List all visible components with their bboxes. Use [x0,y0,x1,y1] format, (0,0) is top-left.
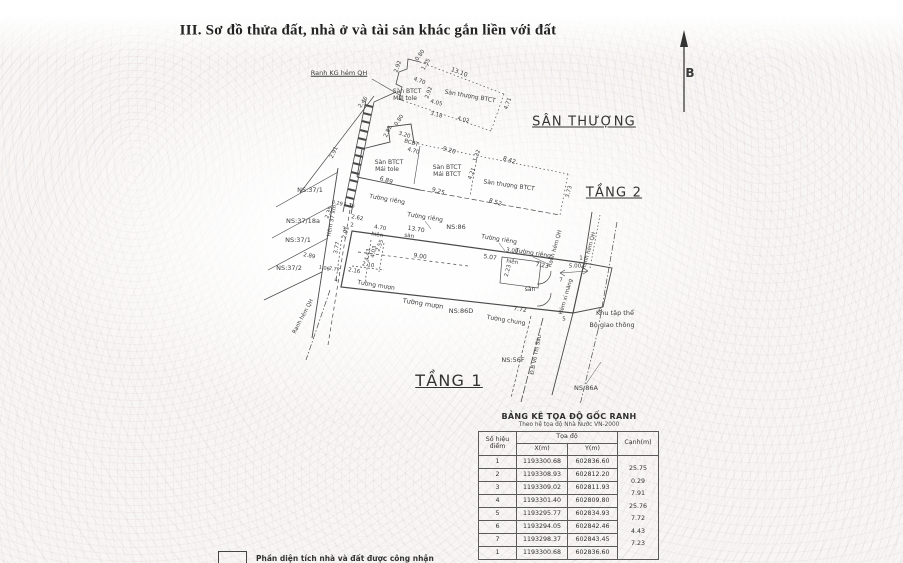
coord-row: 11193300.68602836.6025.750.297.9125.767.… [479,456,659,469]
surface-label: sàn [404,234,414,241]
scanned-land-certificate-page: III. Sơ đồ thửa đất, nhà ở và tài sản kh… [0,0,903,563]
coord-cell: 602834.93 [568,508,618,521]
porch-label: hiên [371,232,384,239]
dimension-label: 2.82 [384,125,394,138]
dimension-label: 2.92 [394,60,403,73]
dimension-label: 3.73 [566,185,574,198]
coord-cell: 602811.93 [568,482,618,495]
heading-tang-2: TẦNG 2 [586,187,642,200]
coord-cell: 1193300.68 [517,547,568,560]
edge-length-value: 7.91 [618,488,658,501]
point-number: 4 [334,278,338,284]
coord-cell: 602842.46 [568,521,618,534]
dimension-label: 4.02 [456,117,469,125]
dimension-label: 2.92 [425,86,434,99]
legend-swatch [218,551,247,563]
heading-san-thuong: SÂN THƯỢNG [532,116,636,129]
dimension-label: 8.52 [488,198,503,208]
point-number: 7 [559,278,563,284]
coord-cell: 1193298.37 [517,534,568,547]
ns-parcel-label: NS:37/2 [276,265,302,272]
wall-label: Tường riêng [481,234,518,246]
col-header-x: X(m) [517,444,568,456]
dimension-label: 3.77 [334,241,342,254]
edge-length-value: 7.23 [618,538,658,551]
dimension-label: 13.10 [450,67,468,79]
ns-parcel-label: NS:37/1 [297,187,323,194]
ns-parcel-label: NS:86 [446,224,465,231]
coord-table-title: BẢNG KÊ TỌA ĐỘ GỐC RANH [478,412,660,421]
coord-cell: 6 [479,521,517,534]
drawing-labels-layer: SÂN THƯỢNGTẦNG 2TẦNG 1BRanh KG hẻm QH0.8… [0,0,903,563]
dimension-label: 7.72 [513,306,527,314]
coord-cell: 1193308.93 [517,469,568,482]
surface-label: sàn [525,287,536,293]
wall-label: Tường mượn [357,280,395,292]
point-number: 5 [562,317,566,323]
street-label: Đ.B Võ Thị Sáu [530,335,543,376]
surface-label: Sàn thượng BTCT [444,90,496,105]
dimension-label: 8.42 [502,156,517,166]
ns-parcel-label: NS:86D [449,308,473,315]
heading-tang-1: TẦNG 1 [415,373,483,389]
dimension-label: 2.16 [347,268,360,276]
wall-label: Tường chung [486,315,526,327]
dimension-label: 1.36 [343,202,355,209]
ns-parcel-label: NS:37/18a [286,218,320,225]
surface-label: Mái tole [375,167,399,173]
coord-cell: 602812.20 [568,469,618,482]
dimension-label: 2.89 [302,253,315,261]
coord-cell: 602836.60 [568,456,618,469]
dimension-label: 2.10 [361,262,374,270]
ns-parcel-label: NS:56F [501,357,524,364]
dimension-label: 4.71 [504,97,513,110]
edge-length-column: 25.750.297.9125.767.724.437.23 [618,456,659,560]
alley-label: Hẻm xi măng [559,279,574,316]
edge-length-value: 4.43 [618,526,658,539]
coord-cell: 4 [479,495,517,508]
coord-table-subtitle: Theo hệ tọa độ Nhà Nước VN-2000 [478,422,660,428]
surface-label: Mái tole [393,96,417,102]
boundary-label: Ranh hẻm QH [548,230,564,268]
col-header-point: Số hiệu điểm [479,432,517,456]
coord-cell: 7 [479,534,517,547]
wall-label: Tường riêng [369,194,406,206]
dimension-label: 4.70 [412,77,425,87]
area-label: Bộ giao thông [589,322,634,329]
dimension-label: 6.89 [379,176,394,186]
area-label: Khu tập thể [596,310,634,317]
dimension-label: 4.21 [468,167,477,180]
dimension-label: 9.20 [442,146,457,156]
dimension-label: 2.77 [328,266,340,273]
coord-cell: 1193301.40 [517,495,568,508]
coord-cell: 2 [479,469,517,482]
surface-label: Sàn thượng BTCT [483,179,535,192]
coord-table-head: Số hiệu điểm Tọa độ Cạnh(m) X(m) Y(m) [479,432,659,456]
edge-length-value: 0.29 [618,476,658,489]
wall-label: Tường mượn [402,298,443,311]
surface-label: Mái BTCT [433,172,461,178]
dimension-label: 5.00 [569,264,581,270]
coord-cell: 1193309.02 [517,482,568,495]
point-number: 3 [342,227,346,233]
col-header-y: Y(m) [568,444,618,456]
dimension-label: 9.00 [413,253,427,261]
coord-table-body: 11193300.68602836.6025.750.297.9125.767.… [479,456,659,560]
col-header-coords: Tọa độ [517,432,618,444]
coord-cell: 5 [479,508,517,521]
legend-text: Phần diện tích nhà và đất được công nhận [256,554,434,563]
dimension-label: 9.25 [431,187,446,197]
edge-length-value: 25.75 [618,463,658,476]
dimension-label: 0.80 [394,114,406,127]
boundary-label: Ranh hẻm QH [293,299,316,335]
coord-cell: 1193300.68 [517,456,568,469]
dimension-label: 4.03 [371,245,379,258]
dimension-label: 4.70 [406,148,419,157]
dimension-label: 4.05 [429,100,442,108]
dimension-label: 2.23 [505,264,513,277]
coord-cell: 602836.60 [568,547,618,560]
legend-row: Phần diện tích nhà và đất được công nhận [218,551,434,563]
point-number: 2 [350,223,354,229]
dimension-label: 1.32 [473,149,482,162]
dimension-label: 2.91 [330,146,340,159]
col-header-edge: Cạnh(m) [618,432,659,456]
wall-label: Tường riêng [407,212,444,224]
coord-cell: 1193295.77 [517,508,568,521]
coord-cell: 1 [479,547,517,560]
coord-cell: 1193294.05 [517,521,568,534]
coord-cell: 3 [479,482,517,495]
coord-cell: 602843.45 [568,534,618,547]
north-label: B [685,67,694,79]
coord-cell: 1 [479,456,517,469]
dimension-label: 3.18 [429,112,442,120]
coordinate-table-section: BẢNG KÊ TỌA ĐỘ GỐC RANH Theo hệ tọa độ N… [478,412,660,560]
dimension-label: 2.46 [358,96,370,109]
coord-cell: 602809.80 [568,495,618,508]
wall-label: Tường riêng [515,248,552,260]
ns-parcel-label: NS:86A [574,385,598,392]
coordinate-table: Số hiệu điểm Tọa độ Cạnh(m) X(m) Y(m) 11… [478,431,659,560]
edge-length-value: 7.72 [618,513,658,526]
dimension-label: 5.07 [483,254,497,262]
ns-parcel-label: NS:37/1 [285,237,311,244]
boundary-label: Ranh hẻm QH [582,232,598,270]
dimension-label: 1.35 [422,58,433,71]
boundary-label: Ranh KG hẻm QH [311,70,368,77]
edge-length-value: 25.76 [618,501,658,514]
